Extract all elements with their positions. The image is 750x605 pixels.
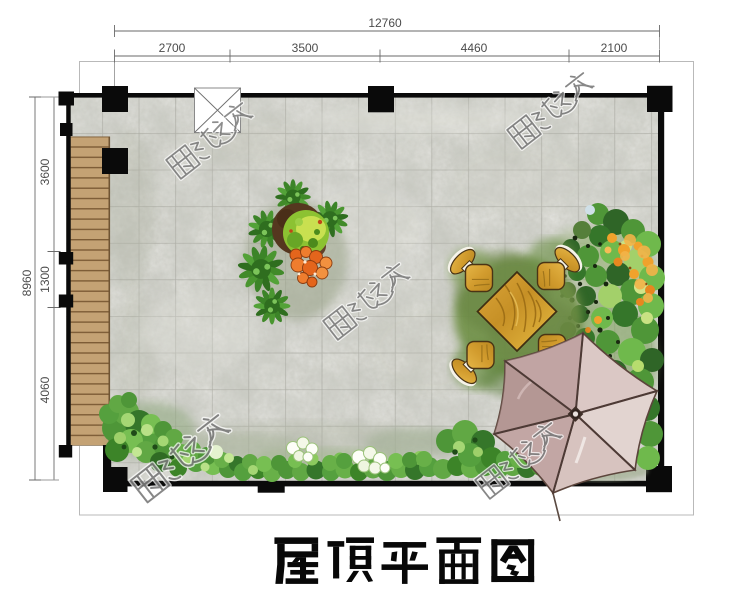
svg-text:2700: 2700 <box>159 41 186 55</box>
svg-text:12760: 12760 <box>368 16 402 30</box>
svg-text:8960: 8960 <box>20 269 34 296</box>
svg-text:2100: 2100 <box>601 41 628 55</box>
svg-text:3500: 3500 <box>292 41 319 55</box>
svg-text:1300: 1300 <box>38 266 52 293</box>
svg-text:4060: 4060 <box>38 376 52 403</box>
svg-text:3600: 3600 <box>38 158 52 185</box>
svg-text:4460: 4460 <box>461 41 488 55</box>
